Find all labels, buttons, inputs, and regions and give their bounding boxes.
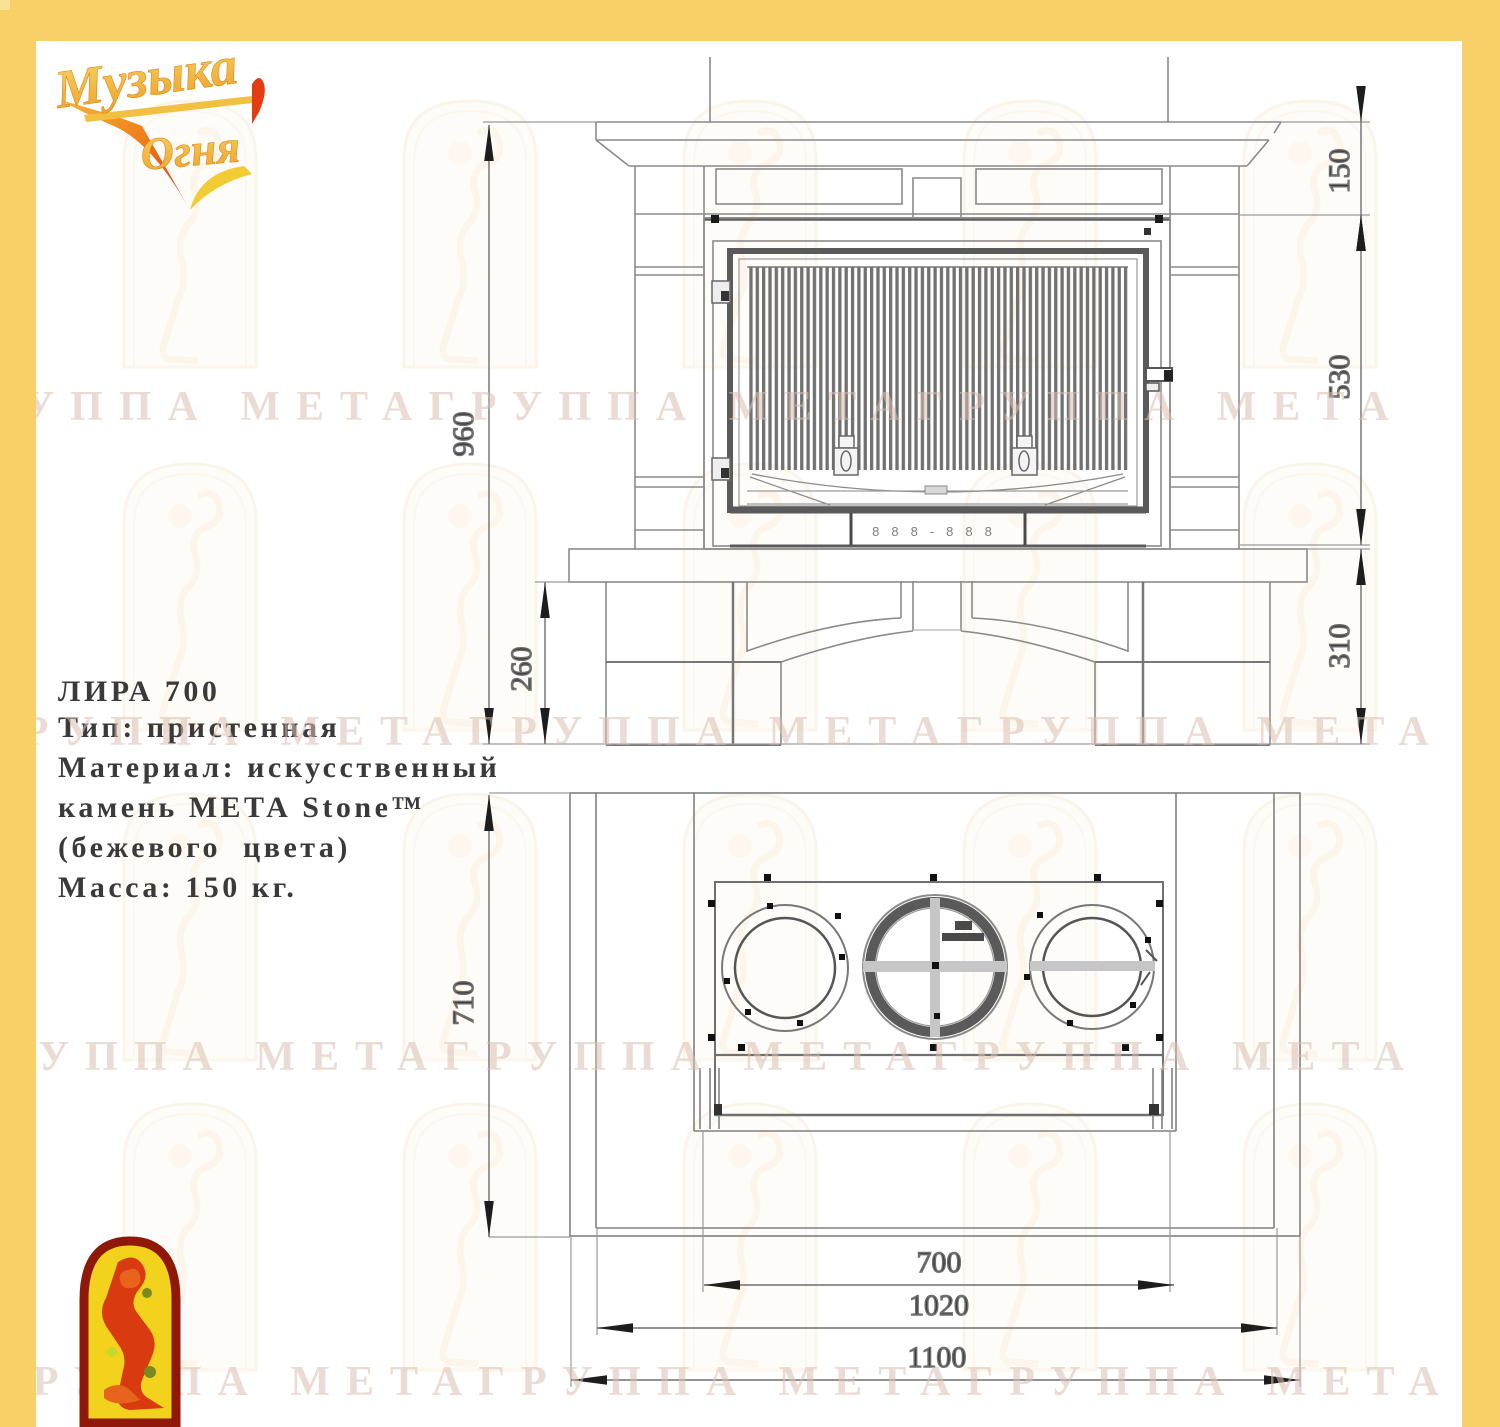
svg-text:888-888: 888-888	[872, 524, 1004, 539]
svg-text:ГРУППА МЕТАГРУППА МЕТАГРУППА М: ГРУППА МЕТАГРУППА МЕТАГРУППА МЕТА	[0, 709, 1445, 755]
svg-text:ГРУППА МЕТАГРУППА МЕТАГРУППА М: ГРУППА МЕТАГРУППА МЕТАГРУППА МЕТА	[0, 1034, 1420, 1080]
svg-text:ГРУППА МЕТАГРУППА МЕТАГРУППА М: ГРУППА МЕТАГРУППА МЕТАГРУППА МЕТА	[0, 384, 1405, 430]
svg-text:150: 150	[1323, 149, 1356, 194]
svg-text:ГРУППА МЕТАГРУППА МЕТАГРУППА М: ГРУППА МЕТАГРУППА МЕТАГРУППА МЕТА	[0, 1359, 1455, 1405]
svg-text:Масса: 150 кг.: Масса: 150 кг.	[58, 871, 297, 904]
svg-text:(бежевого цвета): (бежевого цвета)	[58, 831, 351, 864]
svg-text:260: 260	[505, 647, 538, 692]
svg-text:ЛИРА 700: ЛИРА 700	[58, 675, 220, 708]
svg-text:710: 710	[447, 981, 480, 1026]
svg-text:700: 700	[917, 1246, 962, 1279]
svg-text:камень МЕТА Stone™: камень МЕТА Stone™	[58, 791, 425, 824]
svg-text:1020: 1020	[909, 1289, 969, 1322]
svg-text:310: 310	[1323, 624, 1356, 669]
svg-text:Материал: искусственный: Материал: искусственный	[58, 751, 500, 784]
